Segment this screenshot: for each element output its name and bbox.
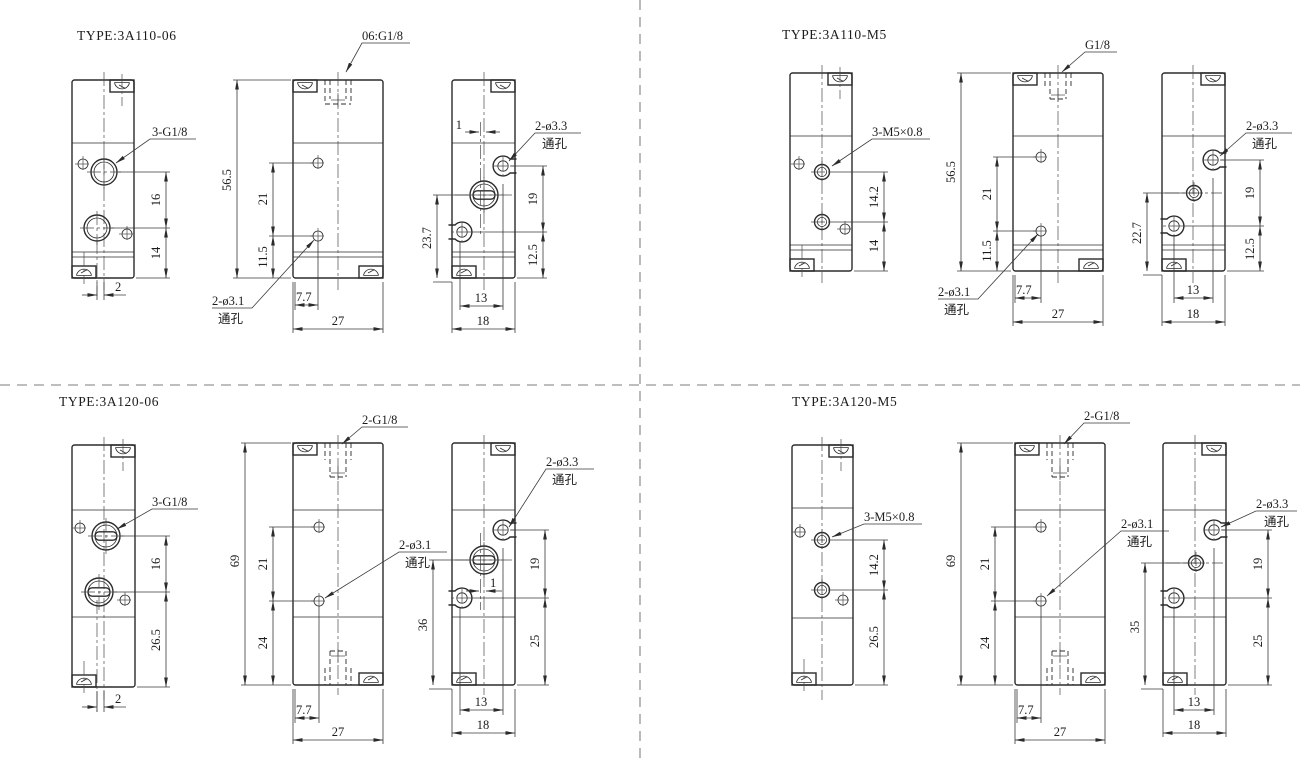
port-callout: 3-M5×0.8 (832, 125, 930, 166)
dim-left: 23.7 (420, 227, 434, 249)
top-port-callout: 06:G1/8 (346, 29, 410, 72)
plan-view: G1/8 2-ø3.1 通孔 56.5 21 11.5 7.7 27 (938, 38, 1117, 326)
through-hole-label-1: 2-ø3.1 (399, 538, 431, 552)
top-port-callout: 2-G1/8 (1064, 409, 1130, 444)
dim-height: 56.5 (944, 161, 958, 183)
plan-view: 2-G1/8 2-ø3.1 通孔 69 21 24 7.7 27 (944, 409, 1169, 744)
dimensions: 69 21 24 7.7 27 (944, 443, 1105, 744)
top-port-callout-label: 2-G1/8 (362, 413, 397, 427)
side-view: 1 2-ø3.3 通孔 23.7 19 12.5 13 18 (420, 72, 581, 333)
front-view: 3-G1/8 16 26.5 2 (72, 437, 198, 712)
port-callout-label: 3-G1/8 (152, 125, 187, 139)
dim-width: 18 (1188, 718, 1201, 732)
dim-x: 7.7 (1018, 703, 1034, 717)
through-hole-label-1: 2-ø3.3 (546, 455, 578, 469)
through-hole-label-2: 通孔 (1264, 515, 1290, 529)
through-hole-label-1: 2-ø3.3 (1246, 119, 1278, 133)
through-hole-callout: 2-ø3.3 通孔 (1220, 119, 1292, 156)
dim-x: 13 (1188, 695, 1201, 709)
dim-lower: 12.5 (1243, 238, 1257, 260)
quadrant-3a120-06: TYPE:3A120-06 3-G1/8 16 26.5 2 (59, 394, 594, 744)
top-port-callout: 2-G1/8 (342, 413, 408, 444)
mounting-holes (75, 155, 135, 245)
top-port-callout-label: 2-G1/8 (1084, 409, 1119, 423)
dim-spacing: 21 (978, 558, 992, 571)
through-hole-callout: 2-ø3.3 通孔 (1221, 497, 1297, 529)
dim-x: 13 (475, 291, 488, 305)
through-hole-label-2: 通孔 (218, 312, 244, 326)
dim-offset: 1 (490, 576, 496, 590)
quadrant-3a120-m5: TYPE:3A120-M5 3-M5×0.8 14.2 26.5 (792, 394, 1297, 744)
top-port-callout: G1/8 (1062, 38, 1117, 72)
through-hole-callout: 2-ø3.1 通孔 (1047, 517, 1169, 596)
port-callout: 3-M5×0.8 (832, 510, 922, 537)
dim-spacing: 16 (149, 194, 163, 207)
dim-lower: 25 (528, 635, 542, 648)
dim-offset: 2 (115, 280, 121, 294)
dim-spacing: 21 (256, 558, 270, 571)
through-hole-label-2: 通孔 (405, 556, 431, 570)
quadrant-title: TYPE:3A110-M5 (782, 27, 887, 42)
through-hole-label-1: 2-ø3.3 (535, 119, 567, 133)
dim-width: 18 (477, 718, 490, 732)
dim-width: 27 (1054, 725, 1067, 739)
dimensions: 69 21 24 7.7 27 (228, 443, 383, 744)
dim-left: 35 (1128, 621, 1142, 634)
through-hole-label-1: 2-ø3.1 (212, 294, 244, 308)
dim-x: 13 (475, 695, 488, 709)
quadrant-title: TYPE:3A110-06 (77, 28, 177, 43)
through-hole-label-2: 通孔 (542, 137, 568, 151)
front-view: 3-G1/8 16 14 2 (72, 72, 196, 300)
dim-bottom: 14 (149, 246, 163, 259)
dim-upper: 19 (1243, 187, 1257, 200)
dim-bottom: 11.5 (256, 246, 270, 267)
dim-lower: 12.5 (526, 244, 540, 266)
dim-width: 27 (1052, 307, 1065, 321)
dim-bottom: 11.5 (980, 240, 994, 261)
quadrant-3a110-m5: TYPE:3A110-M5 3-M5×0.8 14.2 14 (782, 27, 1292, 326)
dim-x: 7.7 (296, 290, 312, 304)
top-port-callout-label: G1/8 (1085, 38, 1110, 52)
dim-bottom: 26.5 (867, 626, 881, 648)
dimensions: 56.5 21 11.5 7.7 27 (220, 80, 383, 333)
dim-width: 18 (1187, 307, 1200, 321)
dim-upper: 19 (528, 558, 542, 571)
dim-spacing: 16 (149, 558, 163, 571)
dim-bottom: 24 (978, 636, 992, 649)
side-view: 2-ø3.3 通孔 22.7 19 12.5 13 18 (1130, 65, 1292, 326)
through-hole-callout: 2-ø3.1 通孔 (325, 538, 447, 598)
dim-offset: 1 (456, 118, 462, 132)
dim-spacing: 21 (256, 193, 270, 206)
through-hole-callout: 2-ø3.3 通孔 (509, 119, 581, 161)
dim-height: 69 (944, 555, 958, 568)
through-hole-label-2: 通孔 (1252, 137, 1278, 151)
dim-width: 18 (477, 314, 490, 328)
port-callout-label: 3-G1/8 (152, 495, 187, 509)
through-hole-label-1: 2-ø3.1 (938, 285, 970, 299)
dim-bottom: 14 (867, 239, 881, 252)
through-hole-callout: 2-ø3.3 通孔 (509, 455, 594, 527)
dim-spacing: 14.2 (867, 554, 881, 576)
offset-dimension: 1 (456, 118, 500, 132)
dimensions: 14.2 14 (831, 172, 888, 271)
side-view: 1 2-ø3.3 通孔 36 19 25 13 18 (416, 435, 594, 737)
through-hole-label-1: 2-ø3.3 (1256, 497, 1288, 511)
dimensions: 16 14 2 (82, 172, 170, 300)
port-callout: 3-G1/8 (117, 495, 198, 529)
dimensions: 14.2 26.5 (831, 540, 888, 685)
plan-view: 2-G1/8 2-ø3.1 通孔 69 21 24 7.7 27 (228, 413, 447, 744)
quadrant-title: TYPE:3A120-M5 (792, 394, 897, 409)
dim-height: 69 (228, 555, 242, 568)
quadrant-3a110-06: TYPE:3A110-06 3-G1/8 16 14 2 (72, 28, 581, 333)
dim-width: 27 (332, 314, 345, 328)
front-view: 3-M5×0.8 14.2 14 (790, 65, 930, 283)
dim-width: 27 (332, 725, 345, 739)
top-port-callout-label: 06:G1/8 (362, 29, 403, 43)
dim-spacing: 21 (980, 188, 994, 201)
through-hole-label-2: 通孔 (944, 303, 970, 317)
through-hole-label-2: 通孔 (552, 473, 578, 487)
quadrant-title: TYPE:3A120-06 (59, 394, 159, 409)
port-callout-label: 3-M5×0.8 (872, 125, 922, 139)
through-hole-label-2: 通孔 (1127, 535, 1153, 549)
plan-view: 06:G1/8 2-ø3.1 通孔 56.5 21 11.5 7.7 27 (212, 29, 410, 333)
dim-x: 7.7 (1016, 283, 1032, 297)
dim-left: 22.7 (1130, 222, 1144, 244)
dimensions: 22.7 19 12.5 13 18 (1130, 160, 1264, 326)
through-hole-label-1: 2-ø3.1 (1121, 517, 1153, 531)
dim-lower: 25 (1251, 635, 1265, 648)
dim-height: 56.5 (220, 169, 234, 191)
dim-bottom: 24 (256, 636, 270, 649)
dim-bottom: 26.5 (149, 629, 163, 651)
drawing-sheet: TYPE:3A110-06 3-G1/8 16 14 2 (0, 0, 1300, 761)
dim-upper: 19 (1251, 558, 1265, 571)
dim-spacing: 14.2 (867, 186, 881, 208)
mounting-holes (72, 518, 133, 610)
front-view: 3-M5×0.8 14.2 26.5 (792, 437, 922, 700)
dim-left: 36 (416, 619, 430, 632)
side-view: 2-ø3.3 通孔 35 19 25 13 18 (1128, 435, 1297, 737)
dim-x: 13 (1187, 283, 1200, 297)
port-callout: 3-G1/8 (116, 125, 196, 163)
valve-dimension-drawing: TYPE:3A110-06 3-G1/8 16 14 2 (0, 0, 1300, 761)
dim-x: 7.7 (296, 703, 312, 717)
dimensions: 36 19 25 13 18 (416, 530, 549, 737)
port-callout-label: 3-M5×0.8 (864, 510, 914, 524)
dimensions: 16 26.5 2 (82, 536, 170, 712)
dim-upper: 19 (526, 193, 540, 206)
dim-offset: 2 (115, 692, 121, 706)
